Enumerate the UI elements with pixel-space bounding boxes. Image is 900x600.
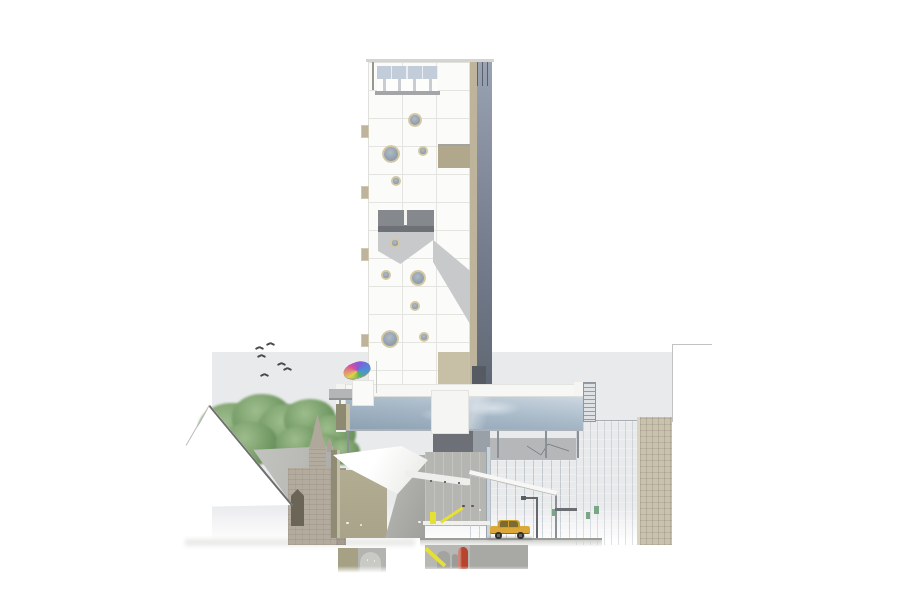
human-figure-part <box>374 560 376 562</box>
exit-sign <box>586 512 590 519</box>
human-figure-part <box>367 559 369 561</box>
skybridge-right-cap <box>574 382 583 396</box>
taxi-wheel-front <box>517 532 524 539</box>
porthole-window <box>419 332 429 342</box>
porthole-window <box>391 176 401 186</box>
exit-sign <box>594 506 599 514</box>
tower-antenna <box>372 62 374 90</box>
bird-icon-part <box>270 342 275 346</box>
adjacent-building-outline-horizontal <box>672 344 712 345</box>
olive-panel <box>336 404 350 430</box>
skybridge-circle-panel <box>431 390 469 434</box>
human-figure-part <box>462 505 464 507</box>
bird-icon <box>255 345 264 350</box>
dark-beam <box>555 508 577 511</box>
porthole-window <box>410 270 426 286</box>
human-figure <box>460 505 467 522</box>
bird-icon-part <box>259 346 264 350</box>
ceiling-light <box>444 481 446 483</box>
human-figure-part <box>360 524 362 526</box>
church-gothic-window <box>291 489 304 526</box>
bird-icon <box>260 372 269 377</box>
support-column <box>545 430 547 458</box>
flag-mast <box>376 361 377 393</box>
skybridge-end-ladder <box>583 382 596 422</box>
human-figure <box>477 509 483 523</box>
human-figure-part <box>418 521 420 523</box>
support-column <box>497 430 499 458</box>
human-figure-part <box>479 509 481 511</box>
support-column <box>555 492 557 538</box>
tower-tan-strip <box>470 62 477 392</box>
bird-icon-part <box>264 373 269 377</box>
tan-building-right <box>637 417 672 545</box>
tower-tan-notch <box>438 144 470 168</box>
bird-icon-part <box>281 362 286 366</box>
yellow-taxi <box>490 520 530 539</box>
architectural-section-rendering <box>0 0 900 600</box>
porthole-window <box>382 145 400 163</box>
bird-icon <box>257 353 266 358</box>
balcony-dark-bar <box>378 226 434 232</box>
human-figure-part <box>471 505 473 507</box>
porthole-window <box>410 301 420 311</box>
tower-side-tab <box>361 248 369 261</box>
ceiling-light <box>458 482 460 484</box>
sawtooth-teeth <box>377 79 438 91</box>
street-lamp-post <box>536 499 538 538</box>
yellow-stair-wall <box>430 512 436 524</box>
glass-curtainwall-building <box>576 420 637 545</box>
glazing-mullions <box>477 62 492 86</box>
sawtooth-base-bar <box>375 91 440 95</box>
adjacent-building-outline-vertical <box>672 344 673 422</box>
porthole-window <box>381 330 399 348</box>
human-figure-part <box>346 522 348 524</box>
balcony-slit <box>404 210 407 225</box>
human-figure <box>416 521 423 538</box>
ceiling-light <box>430 480 432 482</box>
taxi-windows <box>500 521 518 527</box>
tower-glazed-core <box>477 62 492 392</box>
porthole-window <box>408 113 422 127</box>
atrium-left-wall <box>331 450 340 538</box>
tower-lower-tan-block <box>438 352 470 388</box>
bird-icon <box>283 366 292 371</box>
gray-signboard <box>329 389 352 400</box>
tower-side-tab <box>361 125 369 138</box>
roof-kiosk <box>352 380 374 406</box>
human-figure <box>344 522 351 538</box>
taxi-wheel-rear <box>495 532 502 539</box>
basement-fade <box>330 566 590 574</box>
bird-icon <box>266 341 275 346</box>
porthole-window <box>390 238 400 248</box>
glass-reflection-line <box>525 440 575 460</box>
tower-side-tab <box>361 186 369 199</box>
street-lamp-head <box>521 496 526 500</box>
bird-icon-part <box>287 367 292 371</box>
tower-side-tab <box>361 334 369 347</box>
human-figure <box>469 505 476 522</box>
human-figure <box>358 524 364 538</box>
bird-icon-part <box>261 354 266 358</box>
porthole-window <box>381 270 391 280</box>
porthole-window <box>418 146 428 156</box>
